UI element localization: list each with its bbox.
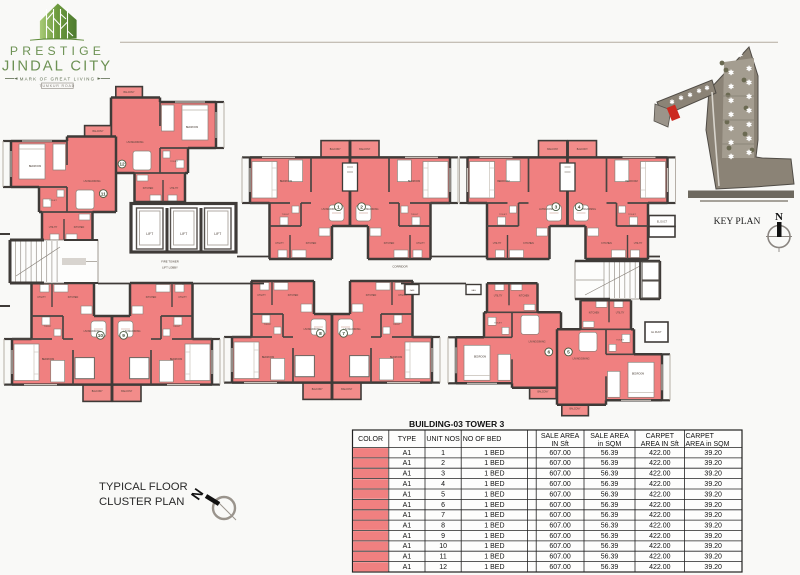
svg-text:BALCONY: BALCONY (121, 390, 132, 393)
svg-text:12: 12 (119, 162, 125, 168)
svg-text:BALCONY: BALCONY (92, 390, 103, 393)
svg-text:4: 4 (578, 204, 581, 210)
svg-text:✱: ✱ (746, 135, 752, 143)
svg-text:KITCHEN: KITCHEN (288, 294, 299, 297)
svg-text:1 BED: 1 BED (484, 523, 504, 530)
svg-text:3: 3 (555, 204, 558, 210)
svg-text:LIFT: LIFT (214, 232, 221, 236)
svg-text:UTILITY: UTILITY (398, 295, 407, 297)
svg-text:7: 7 (342, 331, 345, 337)
svg-text:TOILET: TOILET (282, 214, 290, 216)
svg-text:607.00: 607.00 (549, 450, 571, 457)
svg-text:TYPE: TYPE (398, 436, 417, 443)
svg-text:IN Sft: IN Sft (551, 441, 569, 448)
svg-text:GAS: GAS (471, 289, 476, 292)
svg-text:607.00: 607.00 (549, 554, 571, 561)
svg-text:A1: A1 (403, 481, 412, 488)
svg-text:422.00: 422.00 (649, 523, 671, 530)
svg-text:5: 5 (441, 491, 445, 498)
svg-text:✱: ✱ (669, 99, 674, 106)
svg-text:1 BED: 1 BED (484, 554, 504, 561)
svg-text:KITCHEN: KITCHEN (366, 294, 377, 297)
svg-text:✱: ✱ (678, 95, 683, 102)
svg-text:✱: ✱ (746, 149, 752, 157)
svg-text:39.20: 39.20 (704, 450, 722, 457)
svg-text:BALCONY: BALCONY (93, 130, 104, 133)
svg-text:3: 3 (441, 471, 445, 478)
svg-text:422.00: 422.00 (649, 491, 671, 498)
svg-text:TOILET: TOILET (44, 326, 52, 328)
svg-text:LIVING/DINING: LIVING/DINING (573, 357, 590, 360)
svg-text:UTILITY: UTILITY (178, 297, 187, 299)
svg-text:422.00: 422.00 (649, 512, 671, 519)
svg-text:✱: ✱ (746, 79, 752, 87)
svg-text:2: 2 (441, 460, 445, 467)
svg-text:BEDROOM: BEDROOM (625, 180, 637, 183)
svg-text:FIRE TOWER: FIRE TOWER (161, 260, 178, 264)
svg-text:39.20: 39.20 (704, 533, 722, 540)
svg-text:39.20: 39.20 (704, 481, 722, 488)
svg-text:11: 11 (101, 191, 106, 197)
svg-text:KITCHEN: KITCHEN (68, 296, 79, 299)
svg-text:39.20: 39.20 (704, 512, 722, 519)
svg-text:56.39: 56.39 (601, 512, 619, 519)
svg-text:8: 8 (441, 523, 445, 530)
svg-text:607.00: 607.00 (549, 502, 571, 509)
svg-text:A1: A1 (403, 523, 412, 530)
svg-text:BALCONY: BALCONY (547, 148, 558, 151)
svg-text:EL DUCT: EL DUCT (651, 331, 662, 334)
svg-text:TOILET: TOILET (49, 200, 57, 202)
svg-text:39.20: 39.20 (704, 564, 722, 571)
svg-text:607.00: 607.00 (549, 512, 571, 519)
svg-text:KITCHEN: KITCHEN (384, 242, 395, 245)
svg-text:UTILITY: UTILITY (37, 297, 46, 299)
svg-text:✱: ✱ (728, 83, 734, 91)
svg-text:1 BED: 1 BED (484, 450, 504, 457)
svg-text:LIFT: LIFT (180, 232, 187, 236)
svg-text:607.00: 607.00 (549, 481, 571, 488)
svg-text:✱: ✱ (728, 111, 734, 119)
svg-text:A1: A1 (403, 460, 412, 467)
svg-text:BEDROOM: BEDROOM (474, 355, 486, 358)
svg-text:56.39: 56.39 (601, 533, 619, 540)
svg-text:LIVING/DINING: LIVING/DINING (84, 180, 101, 183)
svg-text:1 BED: 1 BED (484, 460, 504, 467)
svg-text:5: 5 (567, 350, 570, 356)
svg-text:BALCONY: BALCONY (124, 91, 135, 94)
svg-text:A1: A1 (403, 512, 412, 519)
svg-text:✱: ✱ (728, 139, 734, 147)
svg-text:LIVING/DINING: LIVING/DINING (529, 340, 546, 343)
svg-text:422.00: 422.00 (649, 564, 671, 571)
svg-text:1 BED: 1 BED (484, 543, 504, 550)
svg-text:1 BED: 1 BED (484, 533, 504, 540)
svg-text:LIFT LOBBY: LIFT LOBBY (162, 266, 178, 270)
svg-text:422.00: 422.00 (649, 502, 671, 509)
svg-text:✱: ✱ (728, 125, 734, 133)
svg-text:UTILITY: UTILITY (493, 243, 502, 245)
svg-text:BALCONY: BALCONY (570, 407, 581, 410)
svg-text:KITCHEN: KITCHEN (601, 242, 612, 245)
svg-text:TOILET: TOILET (393, 324, 401, 326)
svg-text:UTILITY: UTILITY (275, 243, 284, 245)
svg-text:KITCHEN: KITCHEN (523, 242, 534, 245)
svg-text:✱: ✱ (696, 88, 701, 95)
svg-text:✱: ✱ (746, 65, 752, 73)
svg-text:✱: ✱ (746, 121, 752, 129)
svg-text:422.00: 422.00 (649, 481, 671, 488)
svg-text:1 BED: 1 BED (484, 502, 504, 509)
svg-text:CORRIDOR: CORRIDOR (392, 265, 407, 269)
svg-text:422.00: 422.00 (649, 533, 671, 540)
svg-text:BEDROOM: BEDROOM (390, 356, 402, 359)
svg-text:KITCHEN: KITCHEN (589, 311, 600, 314)
svg-text:422.00: 422.00 (649, 554, 671, 561)
svg-text:39.20: 39.20 (704, 471, 722, 478)
svg-text:39.20: 39.20 (704, 491, 722, 498)
svg-text:UTILITY: UTILITY (49, 227, 58, 229)
svg-text:1 BED: 1 BED (484, 491, 504, 498)
svg-text:EL DUCT: EL DUCT (657, 221, 668, 224)
svg-text:TOILET: TOILET (616, 339, 624, 341)
svg-text:KITCHEN: KITCHEN (306, 242, 317, 245)
svg-text:TUMKUR ROAD: TUMKUR ROAD (40, 84, 76, 88)
svg-text:9: 9 (122, 333, 125, 339)
svg-text:BALCONY: BALCONY (341, 388, 352, 391)
svg-text:1: 1 (337, 204, 340, 210)
svg-text:39.20: 39.20 (704, 543, 722, 550)
svg-text:NO OF BED: NO OF BED (463, 436, 502, 443)
svg-text:607.00: 607.00 (549, 460, 571, 467)
svg-text:BEDROOM: BEDROOM (262, 356, 274, 359)
svg-text:56.39: 56.39 (601, 450, 619, 457)
svg-text:BEDROOM: BEDROOM (186, 126, 198, 129)
svg-text:A1: A1 (403, 471, 412, 478)
svg-text:A1: A1 (403, 554, 412, 561)
svg-text:2: 2 (360, 204, 363, 210)
svg-text:✱: ✱ (728, 69, 734, 77)
svg-text:1: 1 (441, 450, 445, 457)
svg-text:56.39: 56.39 (601, 491, 619, 498)
svg-text:BALCONY: BALCONY (330, 148, 341, 151)
svg-text:9: 9 (441, 533, 445, 540)
svg-text:1 BED: 1 BED (484, 481, 504, 488)
svg-text:TOILET: TOILET (173, 326, 181, 328)
svg-text:LIVING/DINING: LIVING/DINING (127, 141, 144, 144)
svg-text:UTILITY: UTILITY (616, 312, 625, 314)
svg-text:TOILET: TOILET (628, 214, 636, 216)
svg-text:56.39: 56.39 (601, 481, 619, 488)
svg-text:607.00: 607.00 (549, 533, 571, 540)
svg-text:UTILITY: UTILITY (257, 295, 266, 297)
svg-text:JINDAL CITY: JINDAL CITY (2, 59, 112, 75)
svg-text:BALCONY: BALCONY (538, 390, 549, 393)
svg-text:607.00: 607.00 (549, 543, 571, 550)
svg-text:✱: ✱ (728, 97, 734, 105)
svg-text:6: 6 (441, 502, 445, 509)
svg-text:607.00: 607.00 (549, 564, 571, 571)
svg-text:TYPICAL FLOOR: TYPICAL FLOOR (99, 481, 188, 493)
svg-text:56.39: 56.39 (601, 471, 619, 478)
svg-text:MARK OF GREAT LIVING: MARK OF GREAT LIVING (20, 77, 96, 82)
svg-text:BEDROOM: BEDROOM (42, 358, 54, 361)
svg-text:56.39: 56.39 (601, 543, 619, 550)
svg-text:BALCONY: BALCONY (577, 148, 588, 151)
svg-text:PRESTIGE: PRESTIGE (10, 44, 105, 58)
svg-text:KEY PLAN: KEY PLAN (714, 216, 761, 227)
svg-text:39.20: 39.20 (704, 554, 722, 561)
svg-text:UTILITY: UTILITY (170, 188, 179, 190)
svg-text:CARPET: CARPET (686, 433, 715, 440)
svg-text:422.00: 422.00 (649, 450, 671, 457)
svg-text:10: 10 (439, 543, 447, 550)
svg-text:BALCONY: BALCONY (359, 148, 370, 151)
svg-text:UNIT NOS: UNIT NOS (426, 436, 460, 443)
svg-text:56.39: 56.39 (601, 564, 619, 571)
svg-text:BEDROOM: BEDROOM (170, 358, 182, 361)
svg-text:TOILET: TOILET (499, 214, 507, 216)
svg-text:N: N (775, 211, 783, 223)
svg-text:1 BED: 1 BED (484, 564, 504, 571)
svg-text:A1: A1 (403, 502, 412, 509)
svg-text:GAS: GAS (410, 289, 415, 292)
svg-text:607.00: 607.00 (549, 471, 571, 478)
svg-text:1 BED: 1 BED (484, 512, 504, 519)
svg-text:TOILET: TOILET (494, 322, 502, 324)
svg-text:A1: A1 (403, 450, 412, 457)
svg-text:BEDROOM: BEDROOM (497, 180, 509, 183)
svg-text:✱: ✱ (746, 93, 752, 101)
svg-text:56.39: 56.39 (601, 554, 619, 561)
svg-text:✱: ✱ (746, 107, 752, 115)
svg-text:✱: ✱ (704, 85, 709, 92)
svg-text:56.39: 56.39 (601, 460, 619, 467)
svg-text:✱: ✱ (737, 51, 743, 59)
svg-text:BEDROOM: BEDROOM (632, 372, 644, 375)
svg-text:✱: ✱ (687, 92, 692, 99)
svg-text:A1: A1 (403, 533, 412, 540)
svg-text:A1: A1 (403, 543, 412, 550)
svg-text:6: 6 (547, 350, 550, 356)
svg-text:BEDROOM: BEDROOM (29, 165, 41, 168)
svg-text:UTILITY: UTILITY (494, 295, 503, 297)
svg-text:56.39: 56.39 (601, 502, 619, 509)
svg-text:UTILITY: UTILITY (416, 243, 425, 245)
svg-text:✱: ✱ (728, 153, 734, 161)
svg-text:1 BED: 1 BED (484, 471, 504, 478)
svg-text:KITCHEN: KITCHEN (519, 294, 530, 297)
svg-text:12: 12 (439, 564, 447, 571)
svg-text:CLUSTER PLAN: CLUSTER PLAN (99, 496, 184, 508)
svg-text:422.00: 422.00 (649, 471, 671, 478)
svg-text:TOILET: TOILET (170, 161, 178, 163)
svg-text:39.20: 39.20 (704, 460, 722, 467)
svg-text:in SQM: in SQM (598, 441, 622, 448)
svg-text:4: 4 (441, 481, 445, 488)
svg-text:CARPET: CARPET (646, 433, 675, 440)
svg-text:AREA IN Sft: AREA IN Sft (641, 441, 679, 448)
svg-text:TOILET: TOILET (411, 214, 419, 216)
svg-text:A1: A1 (403, 564, 412, 571)
svg-text:BEDROOM: BEDROOM (280, 180, 292, 183)
svg-text:607.00: 607.00 (549, 523, 571, 530)
svg-text:10: 10 (98, 333, 104, 339)
svg-text:8: 8 (319, 331, 322, 337)
svg-text:KITCHEN: KITCHEN (74, 226, 85, 229)
svg-text:7: 7 (441, 512, 445, 519)
svg-text:607.00: 607.00 (549, 491, 571, 498)
svg-text:BUILDING-03 TOWER 3: BUILDING-03 TOWER 3 (409, 419, 505, 429)
svg-text:LIFT: LIFT (146, 232, 153, 236)
svg-text:KITCHEN: KITCHEN (146, 296, 157, 299)
svg-text:SALE AREA: SALE AREA (590, 433, 629, 440)
svg-text:BALCONY: BALCONY (312, 388, 323, 391)
svg-text:56.39: 56.39 (601, 523, 619, 530)
svg-text:COLOR: COLOR (358, 436, 383, 443)
svg-text:UTILITY: UTILITY (634, 243, 643, 245)
svg-text:A1: A1 (403, 491, 412, 498)
svg-text:KITCHEN: KITCHEN (143, 187, 154, 190)
svg-text:39.20: 39.20 (704, 502, 722, 509)
svg-text:11: 11 (439, 554, 446, 561)
svg-text:AREA in SQM: AREA in SQM (686, 441, 730, 448)
svg-text:422.00: 422.00 (649, 543, 671, 550)
svg-text:TOILET: TOILET (264, 324, 272, 326)
svg-text:BEDROOM: BEDROOM (408, 180, 420, 183)
svg-text:39.20: 39.20 (704, 523, 722, 530)
svg-text:SALE AREA: SALE AREA (541, 433, 580, 440)
svg-text:422.00: 422.00 (649, 460, 671, 467)
